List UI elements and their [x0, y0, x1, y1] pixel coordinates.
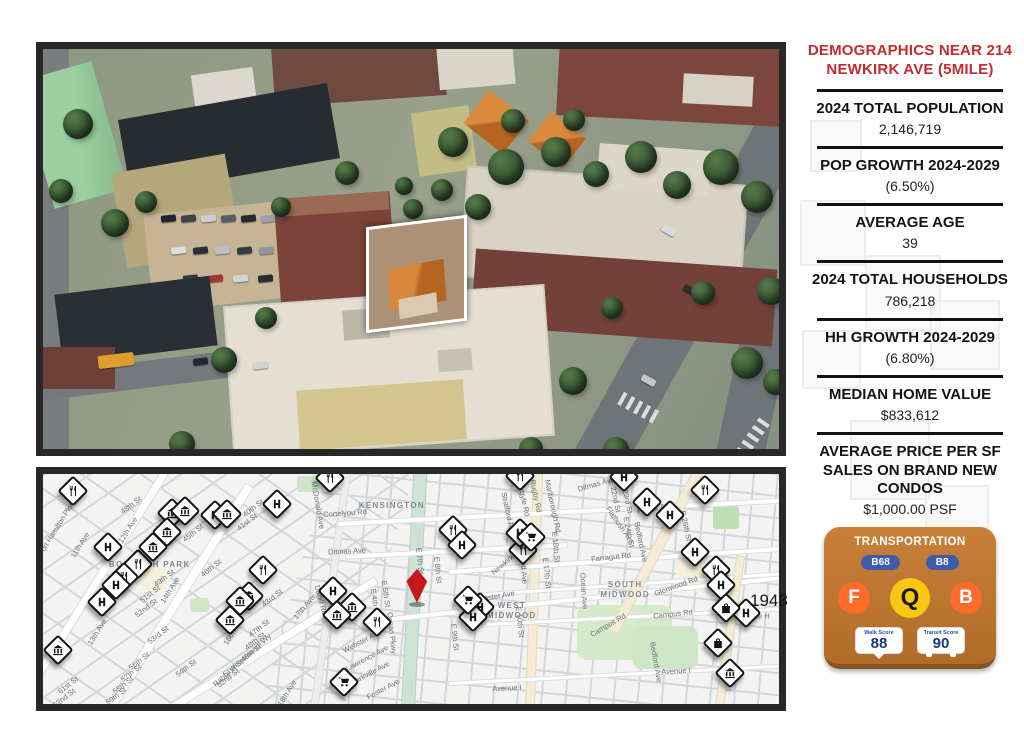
hospital-marker — [684, 541, 706, 563]
walk-score-badge: Walk Score88 — [855, 627, 903, 654]
restaurant-icon — [324, 474, 336, 484]
tree — [169, 431, 195, 449]
street-label: Avenue I — [661, 666, 691, 677]
tree — [488, 149, 524, 185]
street-map: Fort Hamilton Pkwy11th Ave12th Ave13th A… — [43, 474, 779, 704]
restaurant-marker — [319, 474, 341, 489]
stat-value: $1,000.00 PSF — [794, 501, 1024, 517]
hospital-icon — [96, 596, 108, 608]
hospital-icon — [641, 496, 653, 508]
bus-route-badge: B68 — [861, 555, 899, 570]
restaurant-marker — [509, 474, 531, 487]
restaurant-icon — [257, 564, 269, 576]
bank-icon — [234, 595, 246, 607]
tree — [559, 367, 587, 395]
bus-routes: B68B8 — [830, 555, 990, 570]
stat-label: MEDIAN HOME VALUE — [794, 386, 1024, 404]
hospital-icon — [618, 474, 630, 483]
restaurant-marker — [252, 559, 274, 581]
cart-marker — [520, 526, 542, 548]
tree — [403, 199, 423, 219]
hospital-marker — [97, 536, 119, 558]
bank-icon — [179, 505, 191, 517]
neighborhood-label: WEST MIDWOOD — [487, 601, 537, 621]
transportation-title: TRANSPORTATION — [830, 536, 990, 548]
hospital-icon — [110, 579, 122, 591]
stat-value: 2,146,719 — [794, 121, 1024, 137]
bank-marker — [142, 536, 164, 558]
restaurant-marker — [366, 611, 388, 633]
mobility-scores: Walk Score88Transit Score90 — [830, 627, 990, 654]
hospital-icon — [327, 585, 339, 597]
hospital-marker — [659, 504, 681, 526]
demo-stats: 2024 TOTAL POPULATION2,146,719POP GROWTH… — [794, 89, 1024, 518]
subway-lines: FQB — [830, 578, 990, 618]
transit-score-badge: Transit Score90 — [917, 627, 965, 654]
score-value: 88 — [856, 636, 902, 652]
hospital-marker — [451, 534, 473, 556]
hospital-marker — [710, 574, 732, 596]
tree — [541, 137, 571, 167]
tree — [563, 109, 585, 131]
aerial-map-frame — [36, 42, 786, 456]
hospital-icon — [102, 541, 114, 553]
stat-value: 786,218 — [794, 293, 1024, 309]
street-label: Avenue I — [492, 683, 522, 694]
stat-value: (6.50%) — [794, 178, 1024, 194]
bank-marker — [219, 609, 241, 631]
tree — [583, 161, 609, 187]
transportation-card: TRANSPORTATION B68B8 FQB Walk Score88Tra… — [824, 527, 996, 669]
tree — [271, 197, 291, 217]
restaurant-icon — [371, 616, 383, 628]
restaurant-icon — [699, 484, 711, 496]
bank-icon — [224, 614, 236, 626]
subject-property-outline — [366, 215, 467, 333]
tree — [438, 127, 468, 157]
bank-icon — [52, 644, 64, 656]
score-value: 90 — [918, 636, 964, 652]
bag-icon — [720, 602, 732, 614]
bank-marker — [719, 662, 741, 684]
bag-marker — [715, 597, 737, 619]
stat-value: 39 — [794, 235, 1024, 251]
hospital-icon — [664, 509, 676, 521]
bank-marker — [174, 500, 196, 522]
map-overflow-label: 1948 — [750, 591, 788, 611]
bank-icon — [331, 609, 343, 621]
subway-line-badge: Q — [890, 578, 930, 618]
hospital-icon — [456, 539, 468, 551]
bank-marker — [326, 604, 348, 626]
stat-label: AVERAGE PRICE PER SF SALES ON BRAND NEW … — [794, 443, 1024, 498]
stat-separator — [817, 203, 1003, 206]
bank-icon — [147, 541, 159, 553]
cart-marker — [333, 671, 355, 693]
bus-route-badge: B8 — [926, 555, 959, 570]
stat-separator — [817, 318, 1003, 321]
stat-separator — [817, 260, 1003, 263]
tree — [663, 171, 691, 199]
demographics-panel: DEMOGRAPHICS NEAR 214 NEWKIRK AVE (5MILE… — [794, 42, 1024, 669]
tree — [101, 209, 129, 237]
tree — [703, 149, 739, 185]
neighborhood-label: KENSINGTON — [359, 501, 425, 511]
tree — [63, 109, 93, 139]
tree — [731, 347, 763, 379]
cart-icon — [338, 676, 350, 688]
stat-label: HH GROWTH 2024-2029 — [794, 329, 1024, 347]
tree — [49, 179, 73, 203]
tree — [431, 179, 453, 201]
tree — [135, 191, 157, 213]
restaurant-icon — [514, 474, 526, 482]
tree — [601, 297, 623, 319]
bag-icon — [712, 637, 724, 649]
restaurant-marker — [694, 479, 716, 501]
bank-marker — [47, 639, 69, 661]
stat-label: 2024 TOTAL HOUSEHOLDS — [794, 271, 1024, 289]
cart-icon — [462, 594, 474, 606]
tree — [395, 177, 413, 195]
bank-marker — [216, 503, 238, 525]
subject-location-pin — [404, 569, 430, 603]
bag-marker — [707, 632, 729, 654]
hospital-marker — [636, 491, 658, 513]
tree — [255, 307, 277, 329]
bank-icon — [724, 667, 736, 679]
tree — [625, 141, 657, 173]
stat-separator — [817, 146, 1003, 149]
stat-label: 2024 TOTAL POPULATION — [794, 100, 1024, 118]
hospital-icon — [715, 579, 727, 591]
hospital-icon — [689, 546, 701, 558]
stat-separator — [817, 432, 1003, 435]
subway-line-badge: B — [950, 582, 982, 614]
hospital-marker — [91, 591, 113, 613]
stat-separator — [817, 375, 1003, 378]
street-map-frame: Fort Hamilton Pkwy11th Ave12th Ave13th A… — [36, 467, 786, 711]
hospital-marker — [613, 474, 635, 488]
tree — [757, 277, 779, 305]
hospital-icon — [271, 498, 283, 510]
tree — [519, 437, 543, 449]
restaurant-icon — [67, 485, 79, 497]
cart-marker — [457, 589, 479, 611]
restaurant-marker — [62, 480, 84, 502]
subway-line-badge: F — [838, 582, 870, 614]
aerial-3d-map — [43, 49, 779, 449]
tree — [465, 194, 491, 220]
stat-value: (6.80%) — [794, 350, 1024, 366]
panel-title: DEMOGRAPHICS NEAR 214 NEWKIRK AVE (5MILE… — [794, 42, 1024, 80]
bank-icon — [221, 508, 233, 520]
cart-icon — [525, 531, 537, 543]
stat-label: AVERAGE AGE — [794, 214, 1024, 232]
stat-value: $833,612 — [794, 407, 1024, 423]
tree — [335, 161, 359, 185]
neighborhood-label: SOUTH MIDWOOD — [600, 580, 650, 600]
tree — [211, 347, 237, 373]
tree — [691, 281, 715, 305]
hospital-marker — [266, 493, 288, 515]
tree — [741, 181, 773, 213]
tree — [501, 109, 525, 133]
stat-label: POP GROWTH 2024-2029 — [794, 157, 1024, 175]
stat-separator — [817, 89, 1003, 92]
